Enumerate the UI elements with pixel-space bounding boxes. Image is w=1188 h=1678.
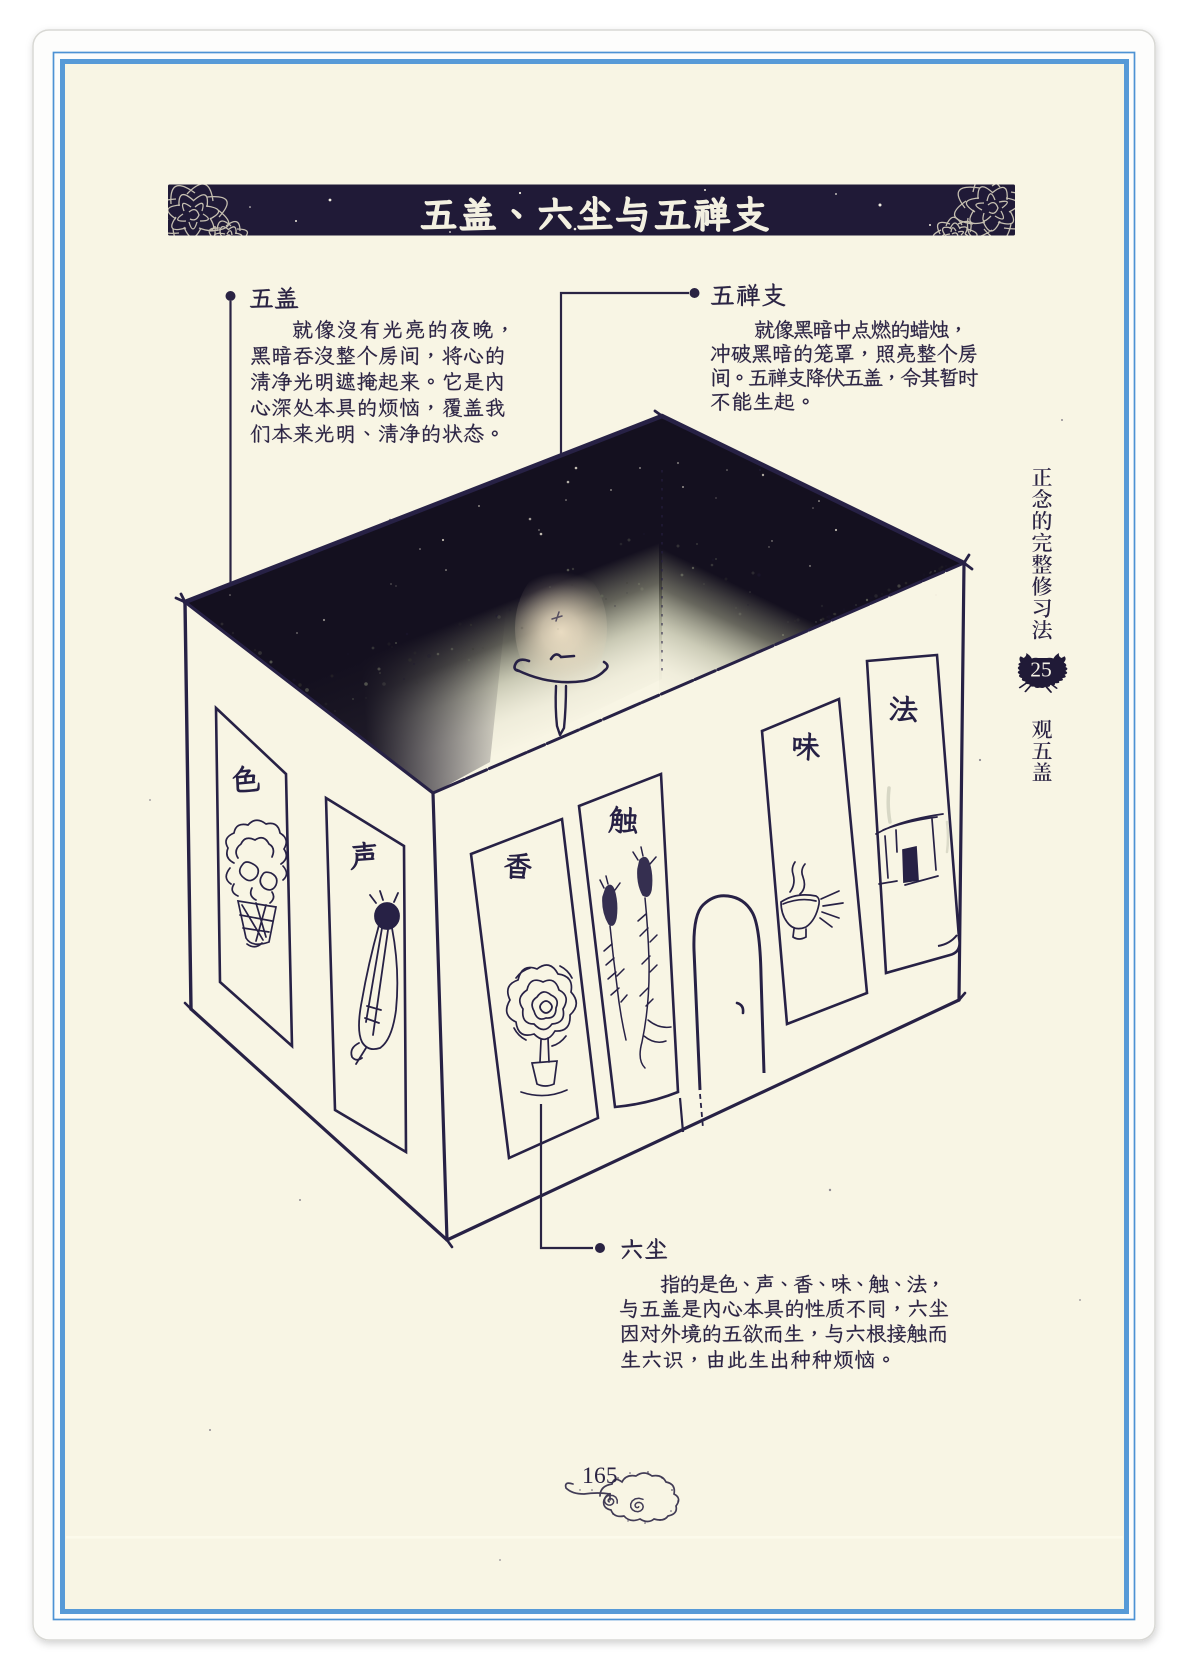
svg-text:25: 25: [1030, 658, 1052, 682]
svg-text:165: 165: [582, 1463, 618, 1489]
